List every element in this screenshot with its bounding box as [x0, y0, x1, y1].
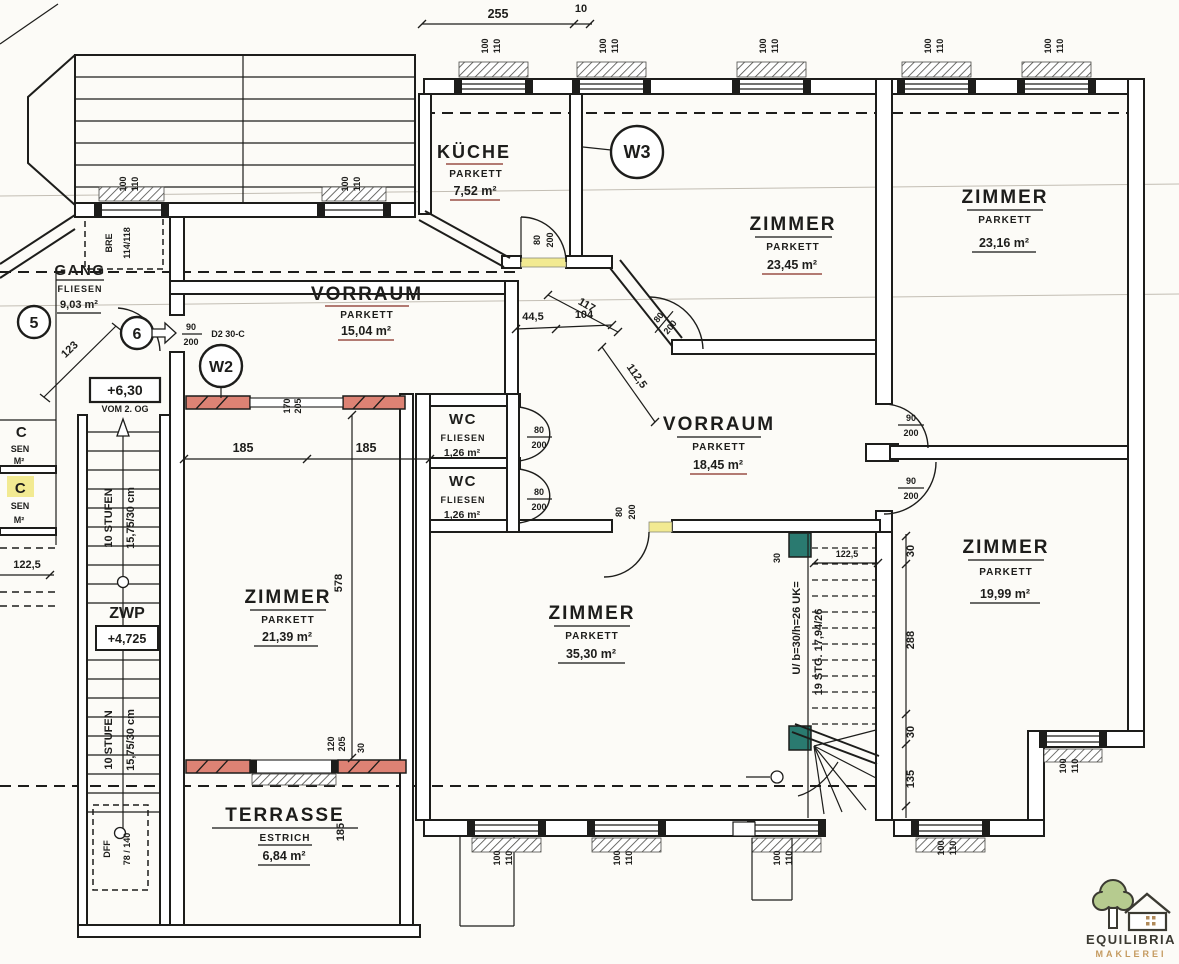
- room-finish: PARKETT: [766, 242, 819, 253]
- dim-label: 10: [575, 3, 587, 15]
- marker-w2: W2: [209, 359, 233, 376]
- room-name: ZIMMER: [750, 214, 837, 235]
- room-label-zimmer-suedost: ZIMMER PARKETT 19,99 m²: [963, 537, 1050, 603]
- window-size: 100: [492, 850, 502, 865]
- room-label-wc-1: WC FLIESEN 1,26 m²: [440, 411, 485, 459]
- dim-label: 578: [333, 574, 345, 592]
- room-name: VORRAUM: [311, 284, 423, 305]
- room-name: TERRASSE: [225, 805, 344, 826]
- room-area: 7,52 m²: [453, 184, 496, 198]
- room-name: ZIMMER: [245, 587, 332, 608]
- window-size: 110: [1070, 759, 1080, 774]
- door-size: 90: [906, 476, 916, 486]
- stair-flight-label: 10 STUFEN: [103, 488, 115, 547]
- stair-steps: 19 STG. 17,94/26: [813, 609, 825, 696]
- window-size: 100: [772, 850, 782, 865]
- window: [898, 62, 975, 94]
- door-size: 200: [531, 440, 546, 450]
- stair-flight-label: 10 STUFEN: [103, 710, 115, 769]
- marker-5: 5: [30, 315, 39, 332]
- dim-label: 122,5: [836, 549, 859, 559]
- tree-icon: [1093, 880, 1133, 928]
- window-size: 110: [610, 39, 620, 54]
- level-value: +6,30: [107, 382, 143, 398]
- room-area: 23,45 m²: [767, 258, 817, 272]
- stair-step-label: 15,75/30 cm: [125, 487, 137, 549]
- room-finish: PARKETT: [449, 169, 502, 180]
- window: [468, 820, 545, 852]
- marker-6: 6: [133, 326, 142, 343]
- room-label-zimmer-sued: ZIMMER PARKETT 35,30 m²: [549, 603, 636, 663]
- cut-label: C: [16, 424, 28, 441]
- window-size: 100: [758, 38, 768, 53]
- room-area: 1,26 m²: [444, 509, 481, 521]
- stair-profile: U/ b=30/h=26 UK=: [791, 581, 803, 674]
- window-size: 100: [936, 840, 946, 855]
- window: [1040, 731, 1106, 762]
- equilibria-logo: EQUILIBRIA MAKLEREI: [1086, 880, 1176, 959]
- window-size: 100: [118, 176, 128, 191]
- window-size: 110: [1055, 39, 1065, 54]
- door-size: 200: [903, 428, 918, 438]
- dim-label: 30: [356, 743, 366, 753]
- dim-label: 44,5: [522, 311, 543, 323]
- dim-label: 185: [356, 441, 377, 455]
- door-size: 200: [627, 504, 637, 519]
- room-label-zimmer-nordost: ZIMMER PARKETT 23,16 m²: [962, 187, 1049, 252]
- room-label-vorraum-gross: VORRAUM PARKETT 18,45 m²: [663, 414, 775, 474]
- window-size: 100: [480, 38, 490, 53]
- dim-label: 120: [326, 736, 336, 751]
- window: [733, 62, 810, 94]
- room-label-zimmer-nord: ZIMMER PARKETT 23,45 m²: [750, 214, 837, 274]
- window-size: 110: [504, 851, 514, 866]
- window-size: 110: [352, 177, 362, 192]
- window: [588, 820, 665, 852]
- dim-label: 170: [282, 398, 292, 413]
- roof-block: [0, 4, 415, 205]
- door-size: 80: [614, 507, 624, 517]
- logo-name: EQUILIBRIA: [1086, 932, 1176, 947]
- level-annotation: +6,30 VOM 2. OG: [90, 378, 160, 414]
- cut-label: M²: [14, 515, 25, 525]
- door-size: 200: [545, 232, 555, 247]
- room-area: 15,04 m²: [341, 324, 391, 338]
- room-area: 35,30 m²: [566, 647, 616, 661]
- door-size: 80: [532, 235, 542, 245]
- room-area: 21,39 m²: [262, 630, 312, 644]
- room-name: ZIMMER: [962, 187, 1049, 208]
- dim-label: 112,5: [624, 362, 649, 391]
- dff-label: DFF: [102, 840, 112, 858]
- room-finish: FLIESEN: [440, 433, 485, 443]
- bre-size: 114/118: [122, 227, 132, 259]
- room-finish: FLIESEN: [57, 284, 102, 294]
- room-finish: ESTRICH: [260, 833, 311, 844]
- room-label-wc-2: WC FLIESEN 1,26 m²: [440, 473, 485, 521]
- zwp-level: +4,725: [108, 632, 147, 646]
- dim-label: 255: [488, 7, 509, 21]
- room-name: KÜCHE: [437, 142, 511, 162]
- dim-label: 30: [905, 726, 917, 738]
- room-label-gang: GANG FLIESEN 9,03 m²: [55, 262, 106, 313]
- bre-label: BRE: [104, 233, 114, 252]
- room-name: WC: [449, 473, 477, 490]
- window-size: 110: [935, 39, 945, 54]
- door-size-labels: 80 200 80 200 80 200 80 200 80 200 90 20…: [182, 232, 924, 519]
- window: [573, 62, 650, 94]
- room-finish: PARKETT: [692, 442, 745, 453]
- room-name: VORRAUM: [663, 414, 775, 435]
- window-size: 110: [948, 841, 958, 856]
- window: [1018, 62, 1095, 94]
- door-size: 80: [534, 425, 544, 435]
- logo-tagline: MAKLEREI: [1096, 949, 1167, 959]
- floorplan-page: 100 110 100 110 100 110 100 110 100 110 …: [0, 0, 1179, 964]
- dff-size: 78 / 140: [122, 833, 132, 866]
- room-name: WC: [449, 411, 477, 428]
- window-size: 110: [770, 39, 780, 54]
- room-area: 23,16 m²: [979, 236, 1029, 250]
- room-label-vorraum-klein: VORRAUM PARKETT 15,04 m²: [311, 284, 423, 340]
- door-size: 200: [661, 318, 678, 336]
- dim-label: 205: [337, 736, 347, 751]
- door-size: 80: [534, 487, 544, 497]
- room-area: 9,03 m²: [60, 299, 98, 311]
- cut-label: C: [15, 480, 27, 497]
- window-size: 100: [598, 38, 608, 53]
- door-size: 200: [531, 502, 546, 512]
- left-stair: 10 STUFEN 15,75/30 cm 10 STUFEN 15,75/30…: [87, 419, 160, 890]
- room-label-zimmer-west: ZIMMER PARKETT 21,39 m²: [245, 587, 332, 646]
- room-name: ZIMMER: [963, 537, 1050, 558]
- dim-label: 122,5: [13, 559, 41, 571]
- door-size: 90: [186, 322, 196, 332]
- dim-label: 288: [905, 631, 917, 649]
- room-area: 1,26 m²: [444, 447, 481, 459]
- room-labels: KÜCHE PARKETT 7,52 m² ZIMMER PARKETT 23,…: [55, 142, 1050, 865]
- level-source: VOM 2. OG: [101, 404, 148, 414]
- room-finish: PARKETT: [978, 215, 1031, 226]
- window-size: 110: [130, 177, 140, 192]
- zwp-label: ZWP: [109, 605, 145, 622]
- room-name: ZIMMER: [549, 603, 636, 624]
- entry-arrow-icon: [152, 323, 176, 343]
- cut-label: SEN: [11, 501, 30, 511]
- window-size: 100: [1043, 38, 1053, 53]
- room-finish: PARKETT: [261, 615, 314, 626]
- dim-label: 30: [772, 553, 782, 563]
- door-size: 90: [906, 413, 916, 423]
- window-size: 110: [624, 851, 634, 866]
- dim-label: 185: [233, 441, 254, 455]
- cut-label: M²: [14, 456, 25, 466]
- room-area: 19,99 m²: [980, 587, 1030, 601]
- door-size: 200: [183, 337, 198, 347]
- room-name: GANG: [55, 262, 106, 279]
- window-size: 100: [923, 38, 933, 53]
- window: [748, 820, 825, 852]
- dim-label: 30: [905, 545, 917, 557]
- dim-label: 135: [905, 770, 917, 788]
- window-size: 100: [340, 176, 350, 191]
- room-area: 6,84 m²: [262, 849, 305, 863]
- dim-label: 205: [293, 398, 303, 413]
- marker-w3: W3: [624, 142, 651, 162]
- window-size: 110: [492, 39, 502, 54]
- room-finish: PARKETT: [979, 567, 1032, 578]
- door-size: 200: [903, 491, 918, 501]
- room-finish: PARKETT: [340, 310, 393, 321]
- room-finish: FLIESEN: [440, 495, 485, 505]
- stair-step-label: 15,75/30 cm: [125, 709, 137, 771]
- room-finish: PARKETT: [565, 631, 618, 642]
- dim-label: 123: [59, 339, 81, 360]
- window-size: 100: [1058, 758, 1068, 773]
- window: [455, 62, 532, 94]
- window-size: 100: [612, 850, 622, 865]
- entry-door-type: D2 30-C: [211, 329, 245, 339]
- floorplan-drawing: 100 110 100 110 100 110 100 110 100 110 …: [0, 0, 1179, 964]
- room-area: 18,45 m²: [693, 458, 743, 472]
- cut-label: SEN: [11, 444, 30, 454]
